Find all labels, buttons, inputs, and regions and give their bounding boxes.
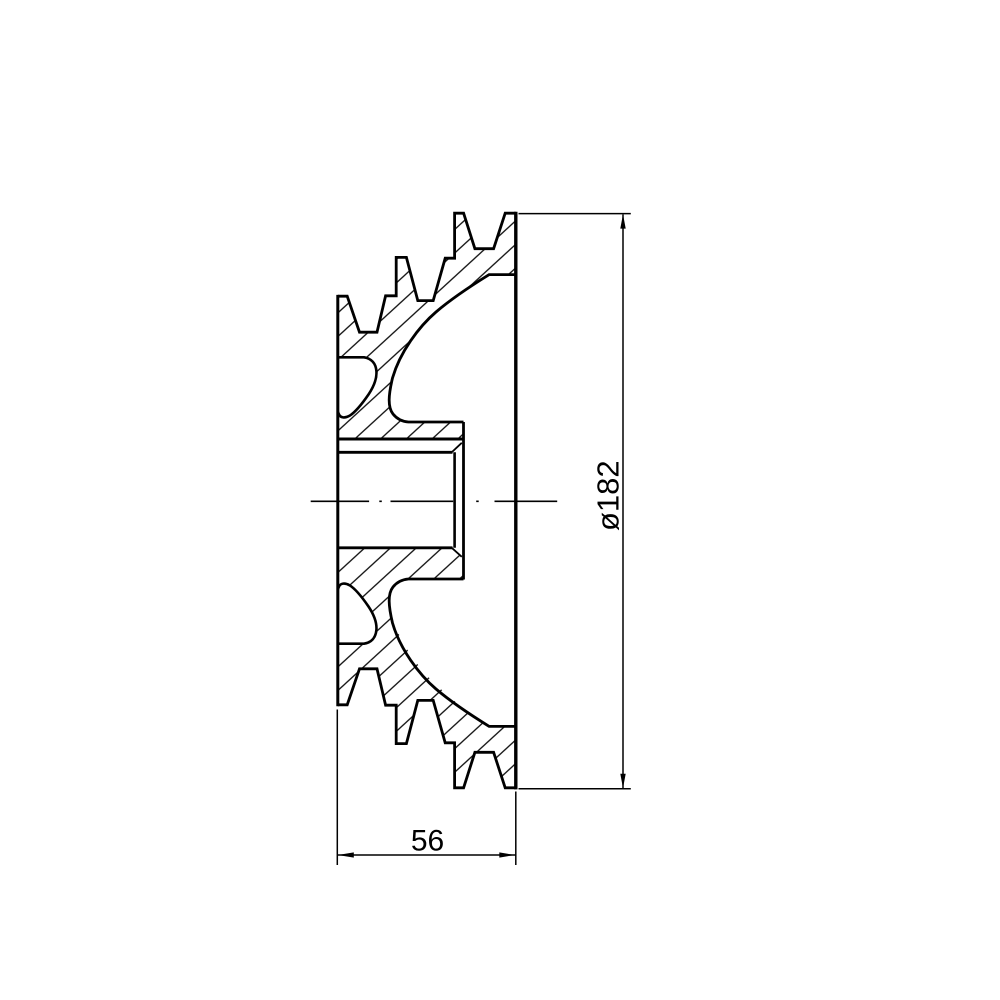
svg-text:ø182: ø182	[591, 460, 626, 531]
svg-text:56: 56	[411, 825, 444, 858]
